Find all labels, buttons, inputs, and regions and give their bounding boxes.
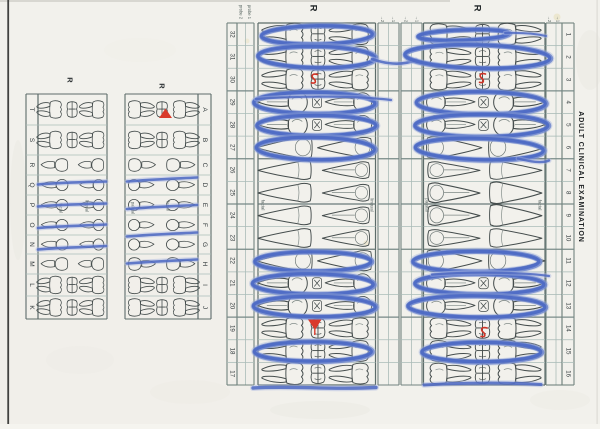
svg-text:30: 30: [229, 76, 236, 83]
svg-text:L: L: [28, 283, 35, 287]
svg-text:lingual: lingual: [370, 198, 375, 211]
svg-text:G: G: [201, 242, 208, 247]
svg-text:10: 10: [565, 234, 572, 241]
svg-text:5: 5: [565, 123, 572, 127]
svg-text:4: 4: [565, 100, 572, 104]
svg-text:A: A: [201, 107, 208, 112]
svg-text:F: F: [201, 223, 208, 227]
svg-text:28: 28: [229, 121, 236, 128]
svg-text:R: R: [472, 5, 483, 12]
svg-text:facial: facial: [261, 200, 266, 211]
svg-text:D: D: [201, 183, 208, 188]
svg-text:palatal: palatal: [425, 198, 430, 212]
svg-text:→1: →1: [556, 16, 561, 23]
svg-text:19: 19: [229, 325, 236, 332]
svg-text:20: 20: [229, 302, 236, 309]
svg-text:32: 32: [229, 31, 236, 38]
svg-text:3: 3: [565, 78, 572, 82]
svg-text:24: 24: [229, 212, 236, 219]
svg-text:ADULT CLINICAL EXAMINATION: ADULT CLINICAL EXAMINATION: [577, 111, 584, 243]
svg-text:R: R: [28, 163, 35, 168]
svg-text:S: S: [28, 138, 35, 143]
svg-text:probe 2: probe 2: [239, 5, 244, 20]
svg-text:27: 27: [229, 144, 236, 151]
svg-text:→1: →1: [391, 16, 396, 23]
svg-text:Q: Q: [28, 182, 35, 187]
svg-text:9: 9: [565, 214, 572, 218]
svg-text:11: 11: [565, 257, 572, 264]
svg-text:21: 21: [229, 280, 236, 287]
svg-text:18: 18: [229, 348, 236, 355]
svg-text:→2: →2: [404, 16, 409, 23]
svg-text:13: 13: [565, 302, 572, 309]
svg-text:25: 25: [229, 189, 236, 196]
svg-text:R: R: [158, 83, 167, 89]
svg-text:14: 14: [565, 325, 572, 332]
svg-text:E: E: [201, 203, 208, 208]
svg-text:J: J: [201, 306, 208, 309]
svg-text:I: I: [201, 284, 208, 286]
svg-text:8: 8: [565, 191, 572, 195]
svg-text:K: K: [28, 305, 35, 310]
svg-text:O: O: [28, 222, 35, 227]
svg-text:N: N: [28, 242, 35, 247]
svg-text:facial: facial: [538, 200, 543, 211]
svg-text:P: P: [28, 203, 35, 207]
svg-text:R: R: [66, 77, 75, 83]
svg-text:22: 22: [229, 257, 236, 264]
svg-text:31: 31: [229, 53, 236, 60]
svg-text:26: 26: [229, 167, 236, 174]
svg-text:16: 16: [565, 370, 572, 377]
svg-text:→2: →2: [380, 16, 385, 23]
svg-text:23: 23: [229, 234, 236, 241]
svg-text:C: C: [201, 163, 208, 168]
svg-text:probe 1: probe 1: [247, 5, 252, 20]
svg-text:B: B: [201, 138, 208, 142]
svg-text:6: 6: [565, 146, 572, 150]
svg-text:R: R: [308, 5, 319, 12]
svg-text:M: M: [28, 261, 35, 266]
svg-text:→2: →2: [547, 16, 552, 23]
svg-text:→1: →1: [415, 16, 420, 23]
svg-text:2: 2: [565, 55, 572, 59]
svg-text:12: 12: [565, 280, 572, 287]
svg-text:7: 7: [565, 168, 572, 172]
svg-text:29: 29: [229, 99, 236, 106]
svg-text:T: T: [28, 108, 35, 112]
svg-text:15: 15: [565, 348, 572, 355]
svg-text:17: 17: [229, 370, 236, 377]
svg-text:H: H: [201, 262, 208, 267]
svg-text:1: 1: [565, 33, 572, 37]
